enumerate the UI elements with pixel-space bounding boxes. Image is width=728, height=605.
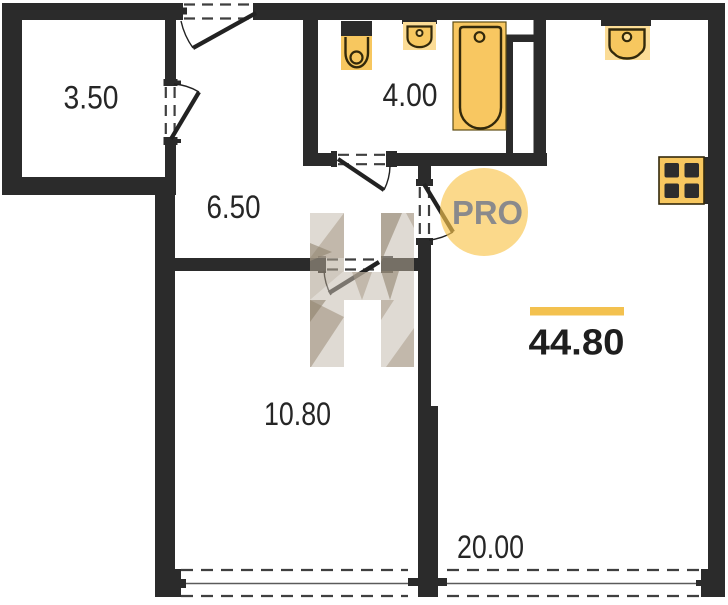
svg-text:PRO: PRO [452,194,523,231]
svg-text:3.50: 3.50 [64,80,119,116]
svg-text:20.00: 20.00 [457,529,524,565]
svg-text:4.00: 4.00 [383,77,438,113]
svg-text:44.80: 44.80 [529,322,625,363]
svg-text:10.80: 10.80 [264,396,331,432]
svg-text:6.50: 6.50 [207,189,261,225]
